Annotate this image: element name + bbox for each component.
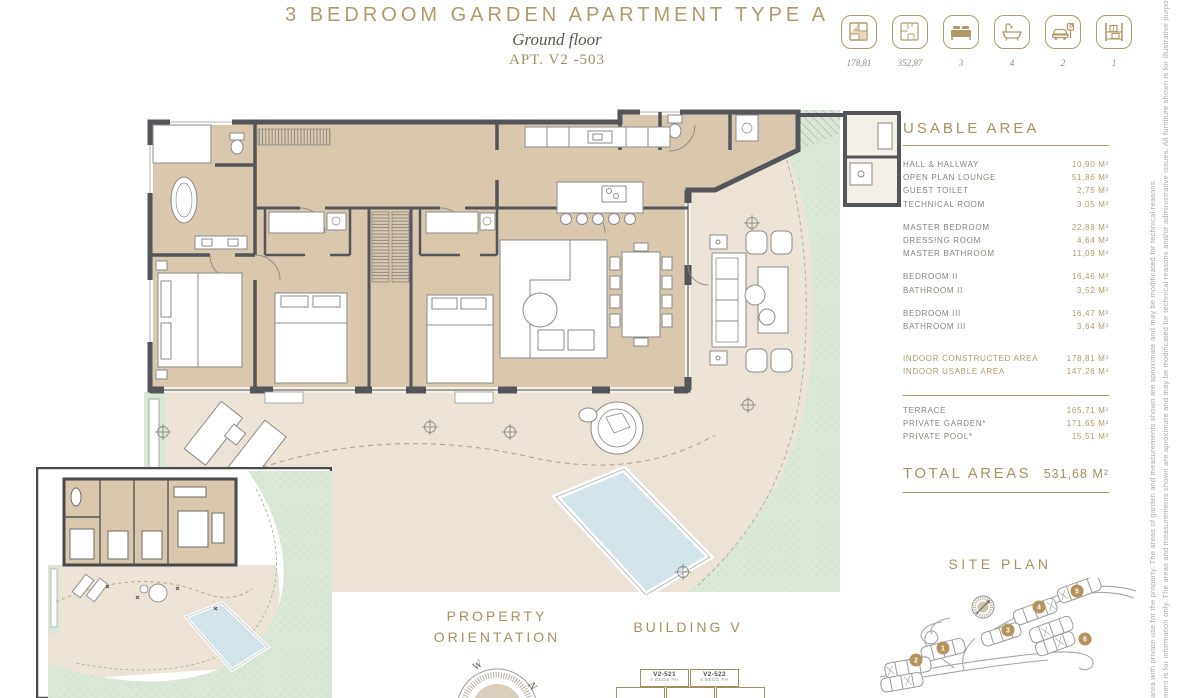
stat-value: 1 <box>1112 58 1117 68</box>
stat-plot-area: 352,87 <box>891 15 929 68</box>
site-marker-5: 5 <box>1075 589 1079 596</box>
floor-subtitle: Ground floor <box>257 30 857 50</box>
usable-area-heading: USABLE AREA <box>903 120 1109 137</box>
stat-parking: P 2 <box>1044 15 1082 68</box>
stat-value: 2 <box>1061 58 1066 68</box>
site-marker-2: 2 <box>914 658 918 665</box>
stat-bedrooms: 3 <box>942 15 980 68</box>
area-row-indoor-usable: INDOOR USABLE AREA147,26 M² <box>903 365 1109 378</box>
area-summary: USABLE AREA HALL & HALLWAY10,90 M² OPEN … <box>903 120 1109 493</box>
area-row: BEDROOM III16,47 M² <box>903 307 1109 320</box>
master-bed <box>156 261 242 379</box>
unit-cell <box>616 687 665 698</box>
area-row: BEDROOM II16,46 M² <box>903 270 1109 283</box>
building-v-units-row1: V2-521 4 BEDS PH V2-522 4 BEDS PH <box>640 669 739 687</box>
area-row: PRIVATE POOL*15,51 M² <box>903 430 1109 443</box>
site-compass-icon <box>972 596 994 618</box>
area-row: GUEST TOILET2,75 M² <box>903 184 1109 197</box>
unit-beds: 4 BEDS PH <box>641 678 688 683</box>
building-v-heading: Building V <box>608 619 768 635</box>
orientation-compass: W N <box>443 652 551 698</box>
brochure-page: 3 Bedroom Garden Apartment type A Ground… <box>0 0 1200 698</box>
bathrooms-icon <box>994 15 1030 49</box>
unit-beds: 4 BEDS PH <box>691 678 738 683</box>
stat-storage: 1 <box>1095 15 1133 68</box>
area-row: HALL & HALLWAY10,90 M² <box>903 158 1109 171</box>
header: 3 Bedroom Garden Apartment type A Ground… <box>257 4 857 69</box>
area-row: PRIVATE GARDEN*171,65 M² <box>903 417 1109 430</box>
orientation-line1: Property <box>418 606 576 627</box>
constructed-area-icon <box>841 15 877 49</box>
parking-sign-letter: P <box>1069 25 1073 31</box>
lounge-sofa <box>500 240 607 358</box>
total-areas-label: TOTAL AREAS <box>903 465 1031 482</box>
area-row: BATHROOM III3,64 M² <box>903 320 1109 333</box>
stat-value: 178,81 <box>847 58 872 68</box>
parking-icon: P <box>1045 15 1081 49</box>
area-row: MASTER BEDROOM22,88 M² <box>903 221 1109 234</box>
orientation-line2: Orientation <box>418 627 576 648</box>
page-title: 3 Bedroom Garden Apartment type A <box>257 4 857 27</box>
disclaimer-line1: ment is for information only. The areas … <box>1161 0 1170 698</box>
disclaimer-line2: area with private use for the property. … <box>1148 0 1157 698</box>
storage-icon <box>1096 15 1132 49</box>
site-plan-heading: Site Plan <box>890 556 1110 572</box>
bedrooms-icon <box>943 15 979 49</box>
plot-area-icon <box>892 15 928 49</box>
bathroom-2-fixtures <box>269 212 346 233</box>
area-row: MASTER BATHROOM11,09 M² <box>903 247 1109 260</box>
inset-building <box>64 479 236 565</box>
unit-cell: V2-521 4 BEDS PH <box>640 669 689 687</box>
bathroom-3-fixtures <box>426 212 495 233</box>
area-row: DRESSING ROOM4,64 M² <box>903 234 1109 247</box>
area-row: TECHNICAL ROOM3,05 M² <box>903 198 1109 211</box>
area-row: BATHROOM II3,52 M² <box>903 284 1109 297</box>
unit-cell <box>716 687 765 698</box>
site-marker-6: 6 <box>1083 637 1087 644</box>
property-orientation-heading: Property Orientation <box>418 606 576 648</box>
unit-id: V2-522 <box>691 671 738 678</box>
stat-constructed-area: 178,81 <box>840 15 878 68</box>
total-areas-value: 531,68 M² <box>1044 467 1109 481</box>
stats-strip: 178,81 352,87 3 <box>840 15 1133 68</box>
stat-value: 3 <box>959 58 964 68</box>
divider <box>903 145 1109 146</box>
stat-bathrooms: 4 <box>993 15 1031 68</box>
stat-value: 4 <box>1010 58 1015 68</box>
unit-id: V2-521 <box>641 671 688 678</box>
unit-cell <box>666 687 715 698</box>
apartment-number: APT. V2 -503 <box>257 52 857 69</box>
site-plan-map: 1 2 3 4 5 6 <box>880 578 1180 698</box>
divider <box>903 492 1109 493</box>
utility-room <box>845 113 899 205</box>
area-row-indoor-constructed: INDOOR CONSTRUCTED AREA178,81 M² <box>903 352 1109 365</box>
area-row: OPEN PLAN LOUNGE51,86 M² <box>903 171 1109 184</box>
site-marker-4: 4 <box>1037 605 1041 612</box>
unit-cell: V2-522 4 BEDS PH <box>690 669 739 687</box>
area-rows: HALL & HALLWAY10,90 M² OPEN PLAN LOUNGE5… <box>903 158 1109 443</box>
bedroom-3-bed <box>427 295 493 383</box>
stat-value: 352,87 <box>898 58 923 68</box>
bedroom-2-bed <box>275 293 347 383</box>
site-marker-1: 1 <box>941 646 945 653</box>
total-areas: TOTAL AREAS 531,68 M² <box>903 465 1109 482</box>
area-row: TERRACE165,71 M² <box>903 404 1109 417</box>
site-buildings <box>880 578 1102 693</box>
compass-west-label: W <box>470 658 485 674</box>
inset-overview-plan <box>36 467 332 698</box>
site-marker-3: 3 <box>1006 628 1010 635</box>
building-v-units-row2 <box>616 687 765 698</box>
